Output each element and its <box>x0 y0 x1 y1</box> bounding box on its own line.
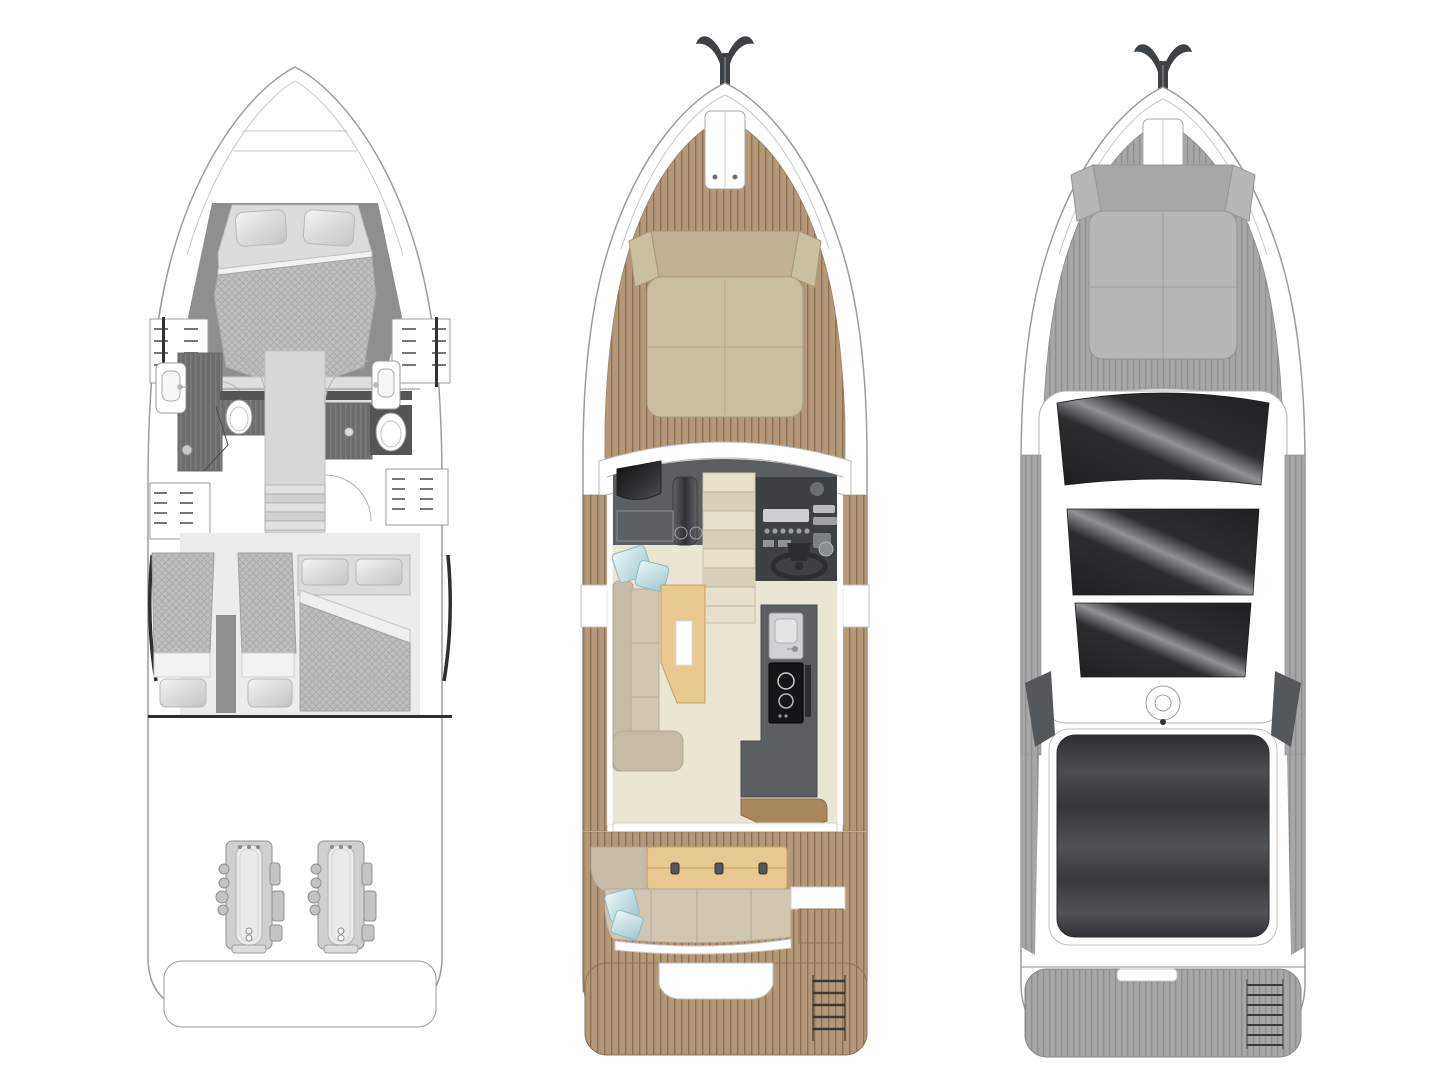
starboard-gate <box>841 585 869 627</box>
yacht-deck-plans <box>0 0 1436 1080</box>
rear-sunroof <box>1075 603 1251 677</box>
front-sunroof <box>1067 509 1259 595</box>
cockpit-table <box>647 847 787 889</box>
windshield-glass <box>1057 393 1269 485</box>
pillow <box>356 559 402 585</box>
pillow <box>160 679 206 707</box>
hinge <box>671 863 679 874</box>
salon-interior <box>611 459 837 832</box>
pillow <box>248 679 292 707</box>
aft-canvas-top <box>1057 735 1269 937</box>
helm-station <box>755 477 837 581</box>
main-deck-plan <box>555 25 905 1070</box>
pillow <box>302 559 348 585</box>
shower-drain <box>345 428 354 437</box>
swim-platform <box>585 963 867 1055</box>
platform-notch <box>1117 969 1177 981</box>
bench-backrest <box>591 847 647 895</box>
main-deck-svg <box>555 25 905 1070</box>
shower-drain <box>182 445 192 455</box>
single-bed <box>152 553 214 653</box>
bow-sunpad <box>629 231 821 417</box>
pillow <box>235 209 287 246</box>
single-bed <box>238 553 296 653</box>
lower-deck-svg <box>120 55 480 1045</box>
port-side-deck <box>583 495 607 831</box>
anchor-locker <box>705 111 745 189</box>
lower-deck-plan <box>120 55 480 1045</box>
side-step <box>799 909 843 943</box>
toilet <box>376 413 406 451</box>
mid-cabin <box>152 533 420 715</box>
hinge <box>715 863 723 874</box>
starboard-side-deck <box>843 495 867 831</box>
hinge <box>759 863 767 874</box>
swim-platform <box>1025 969 1301 1057</box>
helm-display <box>763 509 809 522</box>
pillow <box>303 209 355 246</box>
bulkhead <box>148 715 452 718</box>
transom-platform <box>164 961 436 1027</box>
patio-door <box>613 823 837 832</box>
dial-knob <box>819 542 833 556</box>
exterior-top-plan <box>995 35 1340 1075</box>
platform-notch <box>659 963 773 999</box>
bow-sunpad <box>1071 165 1255 359</box>
cabinet-console <box>673 477 697 545</box>
exterior-top-svg <box>995 35 1340 1075</box>
stairs <box>265 485 325 530</box>
port-gate <box>581 585 609 627</box>
stairs-down <box>703 473 755 623</box>
galley-stove <box>769 663 803 723</box>
starboard-hull-window <box>444 555 450 681</box>
